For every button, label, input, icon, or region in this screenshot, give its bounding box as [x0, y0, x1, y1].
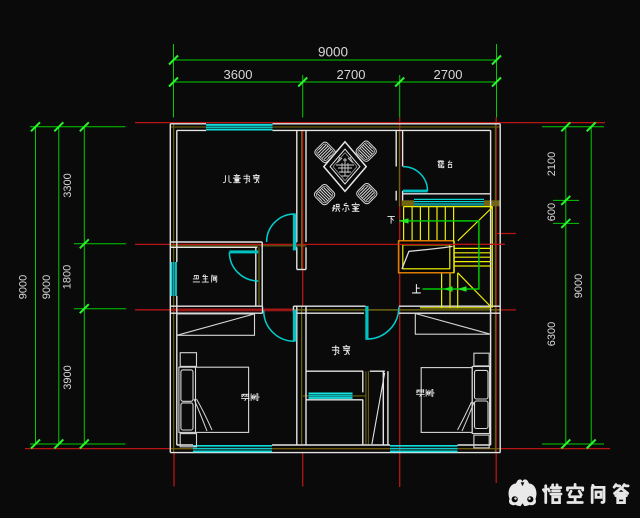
svg-text:3600: 3600 — [224, 67, 253, 82]
svg-text:6300: 6300 — [546, 322, 558, 346]
svg-text:9000: 9000 — [18, 275, 30, 299]
svg-text:9000: 9000 — [318, 45, 348, 60]
svg-text:600: 600 — [546, 203, 558, 221]
svg-text:2700: 2700 — [337, 67, 366, 82]
svg-text:3900: 3900 — [62, 365, 74, 389]
svg-text:9000: 9000 — [573, 274, 585, 298]
svg-text:1800: 1800 — [62, 265, 74, 289]
svg-text:9000: 9000 — [41, 275, 53, 299]
svg-text:3300: 3300 — [62, 173, 74, 197]
svg-text:2100: 2100 — [546, 152, 558, 176]
svg-text:2700: 2700 — [434, 67, 463, 82]
